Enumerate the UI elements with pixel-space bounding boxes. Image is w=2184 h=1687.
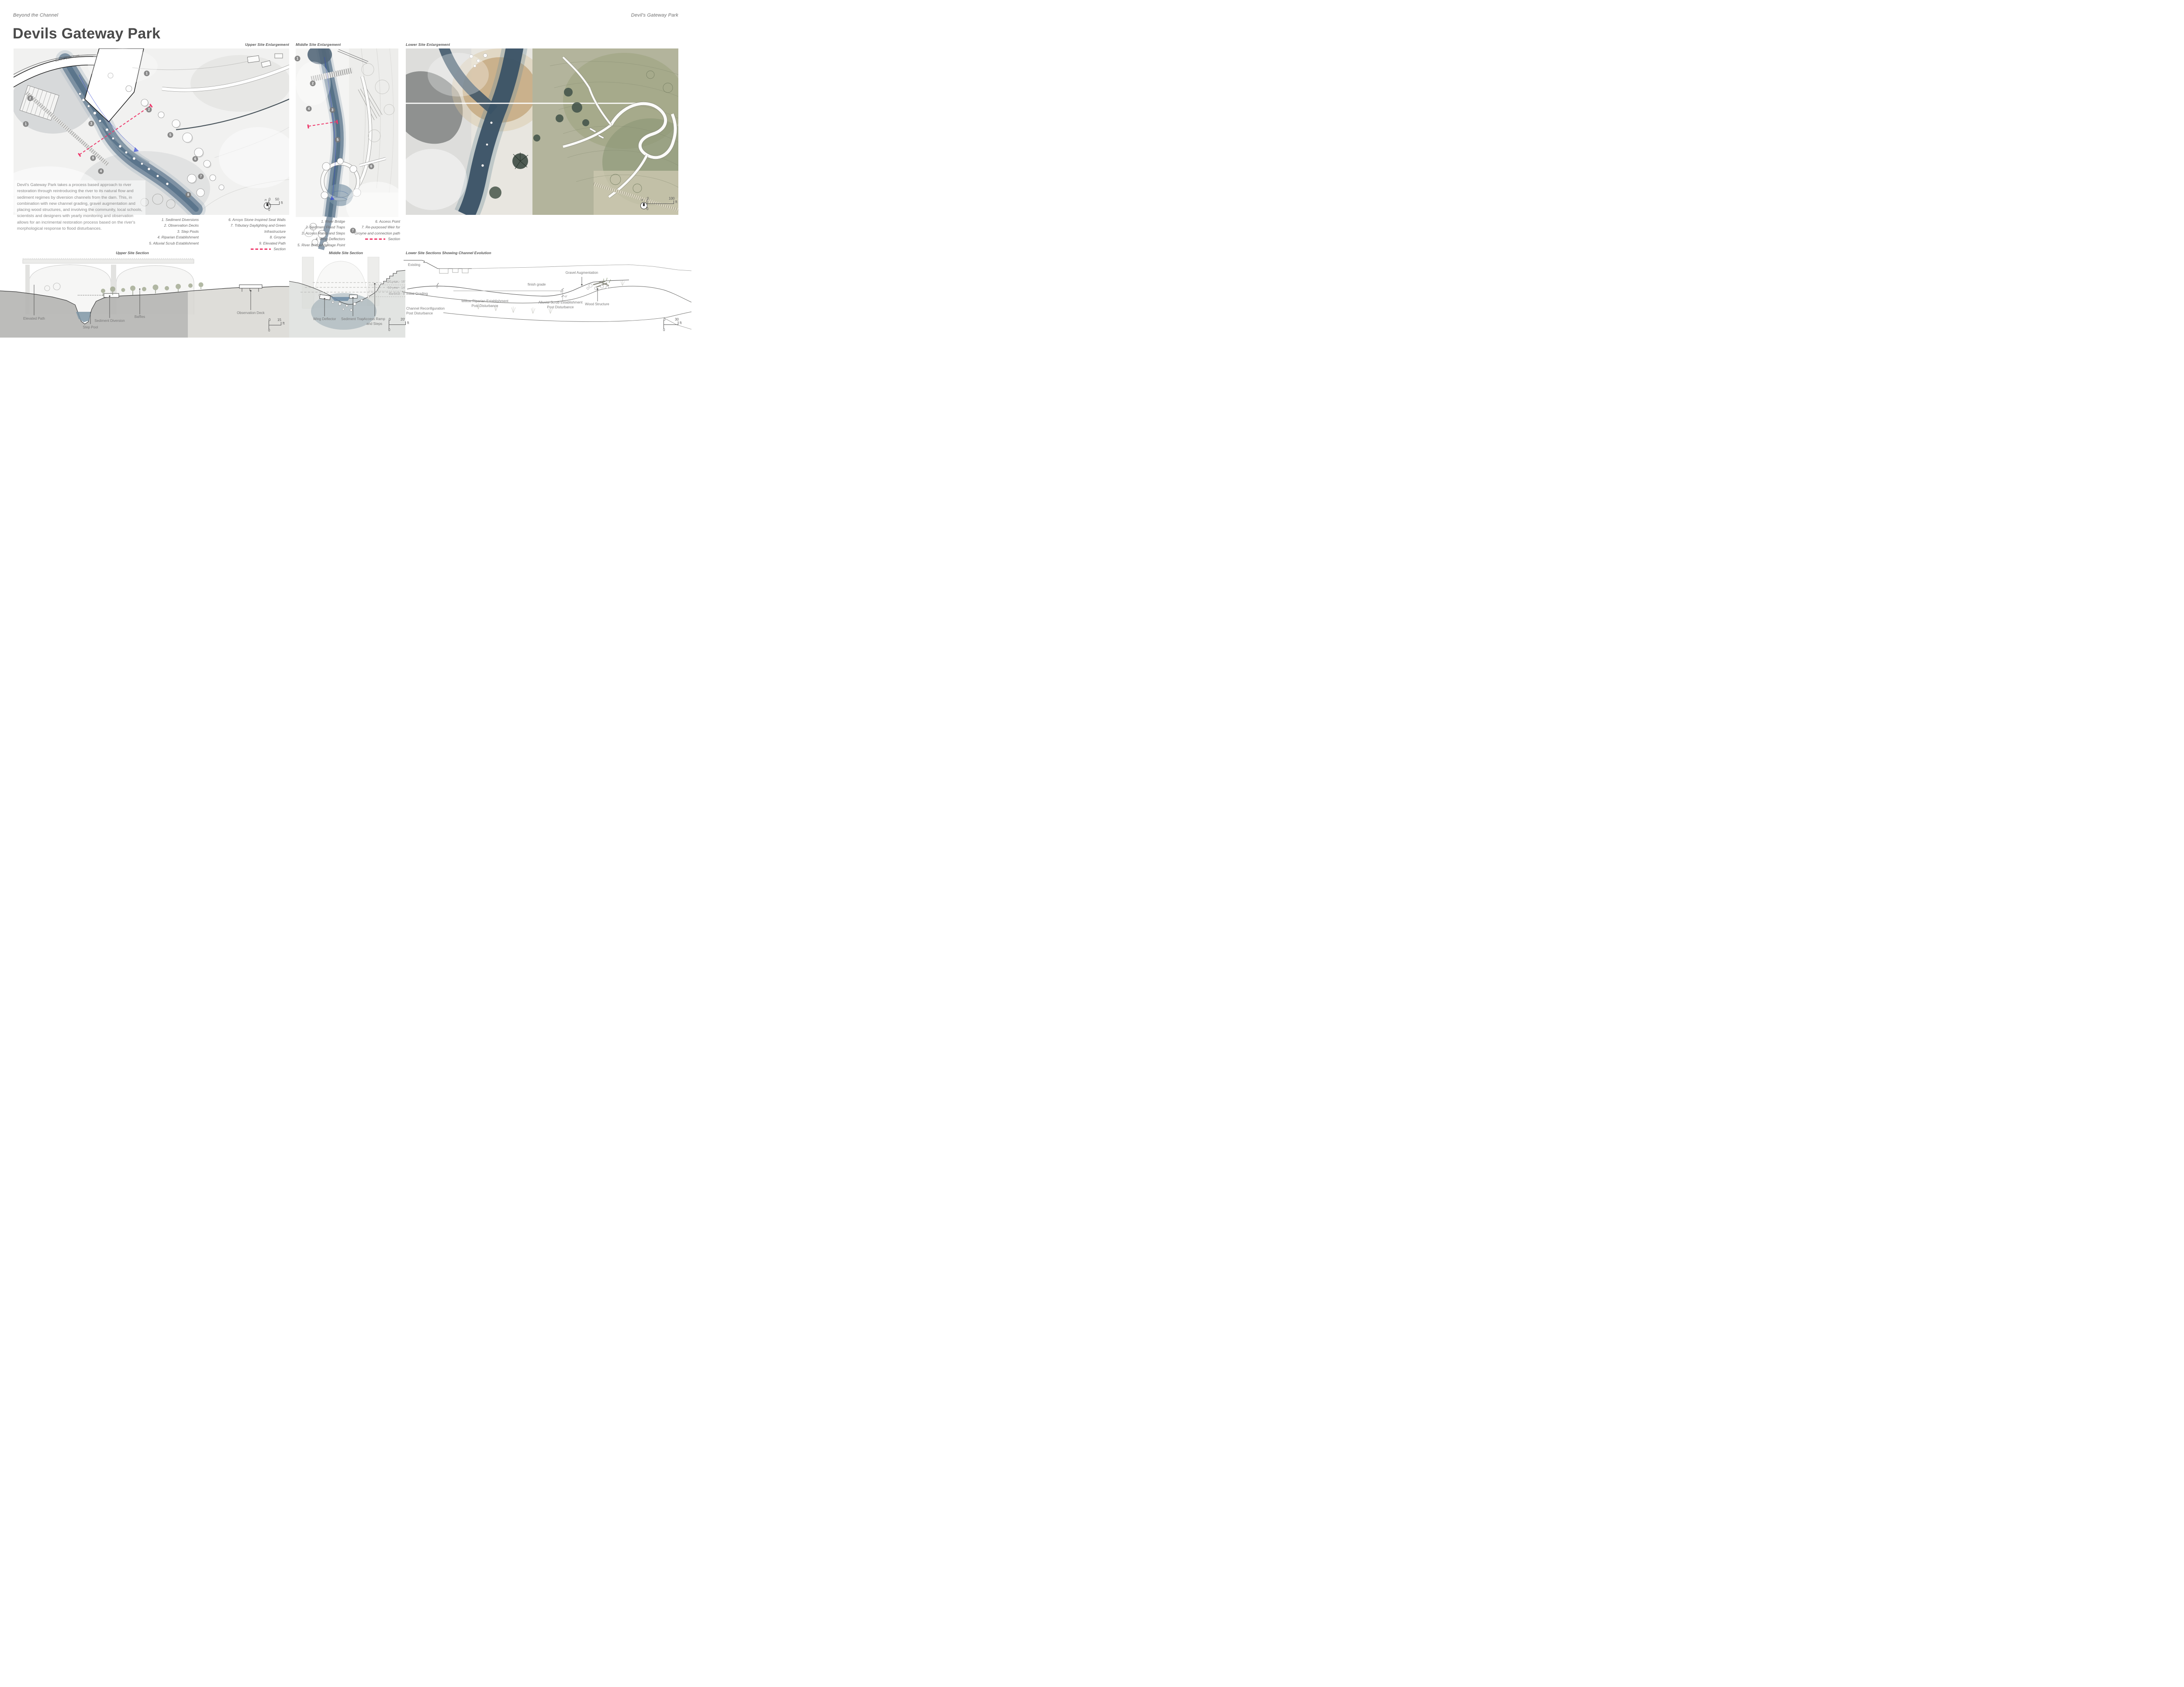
upper-section-scalebar: 0 15 ft 0: [268, 318, 303, 334]
map-marker: 1: [295, 56, 301, 62]
legend-item: 7. Tributary Daylighting and Green: [201, 223, 286, 228]
sediment-diversion-structure: [104, 293, 119, 297]
section-line-swatch: [365, 238, 385, 240]
willow-riparian-label: Willow Riparian Establishment Post Distu…: [454, 299, 515, 308]
scale-max: 100: [669, 197, 674, 200]
upper-section-drawing: [0, 257, 289, 338]
observation-deck-structure: [239, 285, 262, 288]
initial-grading-label: Initial Grading: [406, 292, 428, 297]
scale-max: 20': [401, 317, 405, 321]
upper-section-title: Upper Site Section: [104, 251, 161, 255]
legend-section-row: Section: [201, 246, 286, 252]
scale-max: 15: [277, 318, 281, 322]
scale-bar: [647, 200, 674, 204]
legend-item: 6. Access Point: [347, 219, 400, 224]
flood-level-label: 100 year - 16': [369, 279, 405, 285]
lower-plan-map: [406, 48, 678, 215]
lower-enlargement-label: Lower Site Enlargement: [406, 42, 450, 47]
map-marker: 6: [369, 164, 374, 169]
scale-bar: [269, 201, 280, 205]
map-marker: 3: [330, 107, 335, 113]
map-marker: 2: [28, 96, 33, 101]
map-marker: 1: [23, 121, 29, 127]
dimension-6ft: 6': [436, 286, 439, 289]
access-ramp-label: Access Ramp and Steps: [358, 317, 391, 326]
legend-item: 1. River Bridge: [287, 219, 345, 224]
scale-bar: [664, 321, 678, 325]
scale-unit: ft: [675, 200, 677, 204]
flood-levels: 100 year - 16' 50 year - 14' Bankfull - …: [369, 279, 405, 297]
legend-item: 4. Wing Deflectors: [287, 236, 345, 242]
legend-item: 5. River Bridge/Vantage Point: [287, 242, 345, 248]
lower-sections-drawing: [402, 257, 691, 338]
north-label: n: [265, 198, 266, 202]
lower-section-scalebar: 0 30 ft 0: [663, 317, 691, 333]
middle-legend-col2: 6. Access Point 7. Re-purposed Weir for …: [347, 219, 400, 242]
map-marker: 1: [144, 71, 150, 76]
scale-unit: ft: [283, 321, 284, 325]
wood-structure: [587, 278, 611, 290]
scale-zero-vertical: 0: [646, 207, 648, 211]
legend-item: Groyne and connection path: [347, 231, 400, 236]
map-marker: 9: [90, 155, 96, 161]
middle-legend-col1: 1. River Bridge 2. Sediment Flood Traps …: [287, 219, 345, 248]
upper-legend-col1: 1. Sediment Diversions 2. Observation De…: [122, 217, 199, 246]
legend-item: 2. Sediment Flood Traps: [287, 224, 345, 230]
sediment-diversion-label: Sediment Diversion: [89, 319, 131, 324]
scale-bar: [269, 322, 281, 325]
scale-zero-vertical: 0: [268, 208, 270, 212]
map-marker: 4: [306, 106, 312, 112]
section-line-swatch: [251, 248, 271, 250]
north-label: n: [641, 198, 643, 202]
section-label: Section: [388, 237, 400, 241]
upper-enlargement-label: Upper Site Enlargement: [245, 42, 289, 47]
scale-zero-vertical: 0: [268, 328, 270, 332]
dimension-8ft: +8': [563, 295, 567, 298]
finish-grade-label: finish grade: [528, 283, 546, 287]
legend-item: 3. Step Pools: [122, 229, 199, 235]
legend-item: 6. Arroyo Stone Inspired Seat Walls: [201, 217, 286, 223]
scale-unit: ft: [281, 201, 283, 205]
channel-reconfiguration-label: Channel Reconfiguration Post Disturbance: [406, 307, 445, 316]
map-marker: 4: [98, 169, 104, 174]
map-marker: 3: [89, 121, 94, 127]
legend-item: 4. Riparian Establishment: [122, 235, 199, 240]
legend-item: 1. Sediment Diversions: [122, 217, 199, 223]
scale-unit: ft: [680, 321, 681, 325]
lower-plan-scalebar: 0 100 ft 0: [646, 197, 681, 212]
project-title-right: Devil's Gateway Park: [631, 13, 678, 18]
legend-item: 2. Observation Decks: [122, 223, 199, 228]
legend-item: 5. Alluvial Scrub Establishment: [122, 241, 199, 246]
project-title-left: Beyond the Channel: [13, 13, 58, 18]
wood-structure-label: Wood Structure: [580, 302, 615, 307]
upper-legend-col2: 6. Arroyo Stone Inspired Seat Walls 7. T…: [201, 217, 286, 252]
map-marker: 8: [186, 192, 191, 198]
scale-unit: ft: [407, 321, 409, 325]
flood-level-label: 50 year - 14': [369, 286, 405, 291]
upper-plan-scalebar: 0 50 ft 0: [268, 197, 303, 213]
legend-item: 7. Re-purposed Weir for: [347, 224, 400, 230]
existing-profile: [404, 260, 691, 273]
middle-section-title: Middle Site Section: [318, 251, 374, 255]
scale-zero-vertical: 0: [663, 328, 665, 332]
legend-section-row: Section: [347, 236, 400, 242]
middle-section-scalebar: 0 20' ft 0: [388, 317, 423, 333]
middle-enlargement-label: Middle Site Enlargement: [296, 42, 341, 47]
observation-deck-label: Observation Deck: [234, 311, 267, 316]
legend-item: 3. Access Ramp and Steps: [287, 231, 345, 236]
section-label: Section: [273, 247, 286, 251]
dimension-6ft: 6': [560, 290, 563, 293]
page-title: Devils Gateway Park: [13, 25, 160, 42]
map-marker: 5: [335, 137, 341, 143]
baffles-label: Baffles: [123, 315, 156, 320]
map-marker: 2: [310, 81, 316, 86]
scale-max: 50: [275, 197, 279, 201]
scale-max: 30: [675, 317, 679, 321]
map-marker: 5: [168, 132, 173, 138]
existing-label: Existing: [408, 263, 420, 268]
map-marker: 7: [198, 174, 204, 179]
lower-section-title: Lower Site Sections Showing Channel Evol…: [406, 251, 491, 255]
elevated-path-label: Elevated Path: [17, 317, 51, 321]
legend-item: 8. Groyne: [201, 235, 286, 240]
gravel-augmentation-label: Gravel Augmentation: [560, 271, 604, 276]
scale-bar: [389, 321, 406, 325]
scale-zero-vertical: 0: [388, 328, 390, 332]
map-marker: 6: [193, 156, 198, 162]
presentation-board: Beyond the Channel Devil's Gateway Park …: [0, 0, 691, 338]
legend-item: 9. Elevated Path: [201, 241, 286, 246]
step-pool-label: Step Pool: [74, 325, 107, 330]
map-marker: 2: [146, 107, 152, 113]
legend-item: Infrastructure: [201, 229, 286, 235]
flood-level-label: Bankfull - 8': [369, 292, 405, 297]
